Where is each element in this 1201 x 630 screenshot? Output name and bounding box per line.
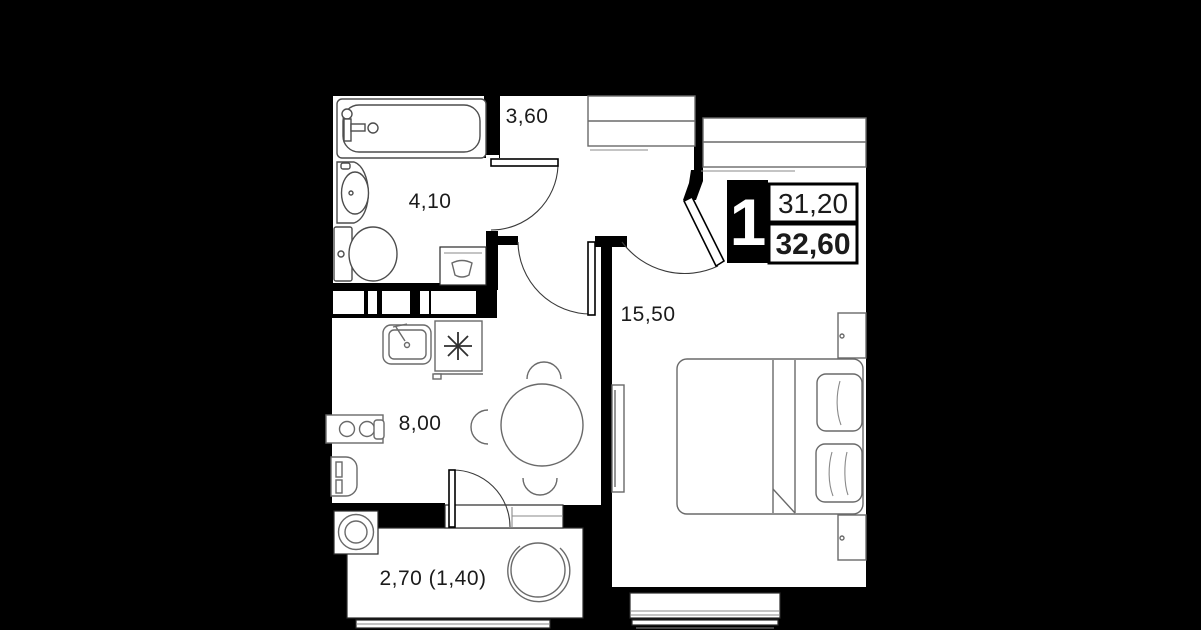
kitchen-door-leaf (588, 242, 595, 315)
wall-kitchen-bottom-right (563, 505, 607, 530)
pillow-icon (816, 444, 862, 502)
wall-bedroom-bottom (601, 587, 872, 593)
floor-plan-svg: 3,60 4,10 15,50 8,00 2,70 (1,40) 1 31,20… (0, 0, 1201, 630)
wall-bedroom-left (601, 237, 612, 593)
area-badge: 1 31,20 32,60 (727, 180, 857, 263)
badge-living-area: 31,20 (778, 188, 848, 219)
wall-top (326, 88, 700, 96)
wall-left-upper (326, 88, 333, 285)
closet-icon (701, 118, 866, 171)
badge-total-area: 32,60 (775, 228, 850, 261)
stove-burner-icon (433, 321, 483, 379)
nightstand-icon (838, 313, 866, 358)
wardrobe-icon (588, 96, 695, 150)
floorplan-canvas: 3,60 4,10 15,50 8,00 2,70 (1,40) 1 31,20… (0, 0, 1201, 630)
balcony-door-leaf (449, 470, 455, 527)
bathroom-area-label: 4,10 (409, 190, 452, 213)
balcony-area-label: 2,70 (1,40) (379, 567, 486, 590)
wall-kitchen-door-left-stub (497, 236, 518, 245)
vent-shaft-icon (333, 291, 476, 314)
pillow-icon (817, 374, 862, 431)
kitchen-sink-icon (383, 324, 431, 364)
bedroom-window (630, 593, 780, 628)
washing-machine-icon (440, 247, 486, 285)
toilet-icon (334, 227, 397, 281)
nightstand-icon (838, 515, 866, 560)
kitchen-area-label: 8,00 (399, 412, 442, 435)
wall-bath-hall-stub (486, 228, 498, 290)
bathroom-door-leaf (491, 159, 558, 166)
wall-right (866, 114, 872, 593)
fridge-icon (331, 457, 357, 496)
cooktop-icon (326, 415, 384, 443)
window-icon (630, 593, 780, 618)
bedroom-area-label: 15,50 (620, 303, 675, 326)
bathtub-icon (337, 99, 486, 158)
bed-icon (677, 359, 863, 514)
sink-icon (337, 162, 369, 223)
badge-rooms-count: 1 (730, 185, 767, 259)
tv-icon (612, 385, 624, 492)
hallway-area-label: 3,60 (506, 105, 549, 128)
flower-pot-icon (334, 511, 378, 554)
